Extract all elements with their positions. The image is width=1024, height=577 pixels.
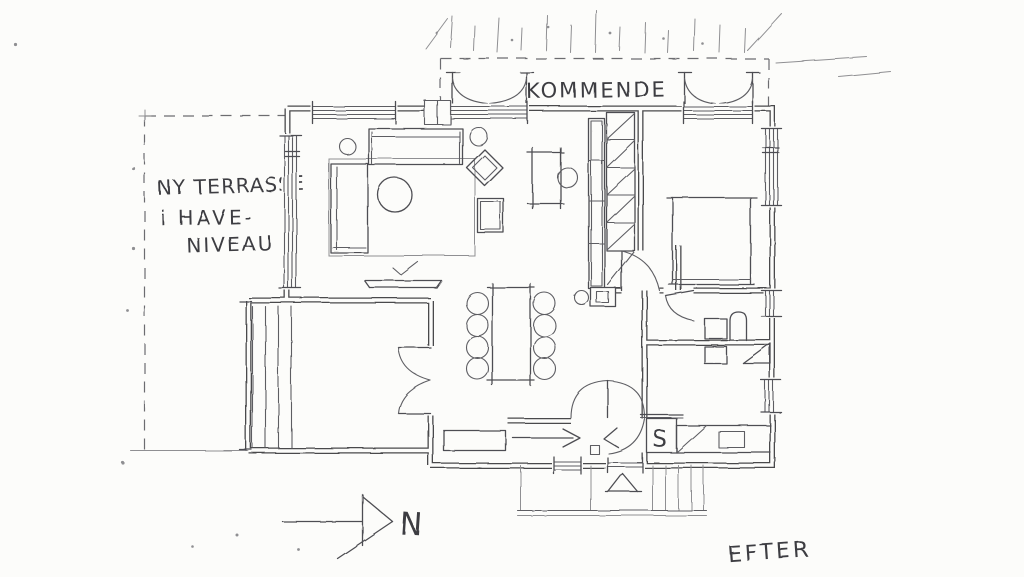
sofa <box>368 128 462 164</box>
bench <box>443 430 505 450</box>
french-doors-left <box>446 72 533 104</box>
window-left-wall <box>279 133 301 290</box>
dining-table <box>466 283 555 385</box>
terrace-boundary <box>130 109 285 450</box>
corner-shower <box>743 343 770 363</box>
up-arrow <box>605 473 641 491</box>
north-arrow: N <box>282 494 423 558</box>
side-table-square <box>477 198 503 232</box>
sketch-paper: NY TERRASSE i HAVE- NIVEAU <box>0 0 1024 577</box>
shelf-unit <box>588 118 604 288</box>
closet-label: S <box>651 426 667 452</box>
daybed <box>330 163 367 252</box>
cabinet <box>704 346 726 363</box>
coffee-table <box>377 177 411 211</box>
window-right-bath <box>761 288 781 318</box>
double-doors <box>398 347 430 413</box>
bedroom-door <box>621 250 659 290</box>
side-table-round-left <box>339 138 355 154</box>
north-label: N <box>398 505 424 543</box>
window-right-laundry <box>761 378 781 414</box>
fireplace <box>364 261 441 287</box>
window-top-balcony-left <box>448 101 529 123</box>
lower-room <box>239 301 430 449</box>
laundry-counter <box>676 425 770 452</box>
floor-plan-sketch: NY TERRASSE i HAVE- NIVEAU <box>0 0 1024 577</box>
washbasin <box>704 318 726 338</box>
future-balcony-label: KOMMENDE <box>526 77 666 103</box>
dining-chairs <box>466 292 555 379</box>
lounge-chair <box>466 149 502 185</box>
window-bottom <box>551 456 582 473</box>
wood-stove <box>574 287 615 306</box>
entry-arrow <box>512 428 579 446</box>
bathroom <box>665 290 770 363</box>
living-room <box>328 127 503 287</box>
french-doors-right <box>678 72 759 104</box>
swing-door-double <box>570 380 644 417</box>
ladder-stair <box>606 112 634 284</box>
vegetation-hatch <box>425 10 890 76</box>
terrace-label-line3: NIVEAU <box>185 230 273 257</box>
rug <box>328 158 474 255</box>
future-balcony: KOMMENDE <box>425 10 890 105</box>
hall: S <box>443 380 770 454</box>
terrace-label-line2: i HAVE- <box>160 204 254 230</box>
bathroom-door <box>665 290 693 320</box>
window-top-living <box>310 101 397 123</box>
desk-area <box>527 147 577 208</box>
side-table-round-right <box>469 127 487 145</box>
chimney <box>424 100 450 124</box>
hall-door <box>590 418 644 454</box>
window-right-bedroom <box>761 126 781 207</box>
entry-door-threshold <box>605 457 644 472</box>
caption: EFTER <box>726 536 811 567</box>
window-top-balcony-right <box>681 101 754 123</box>
toilet <box>729 311 746 340</box>
porch <box>517 465 706 515</box>
